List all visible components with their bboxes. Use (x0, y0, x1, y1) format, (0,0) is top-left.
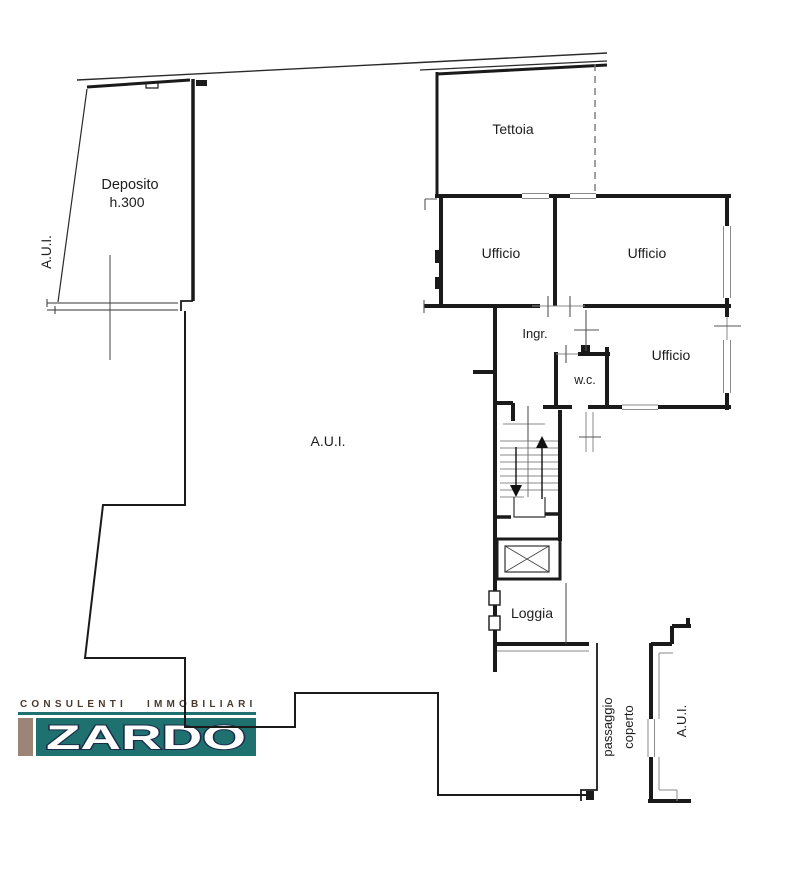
label-deposito: Deposito (101, 177, 158, 193)
label-aui-right: A.U.I. (674, 705, 689, 738)
deposito-top-wall (87, 80, 190, 87)
label-passaggio-line1: passaggio (600, 697, 615, 756)
deposito-left-slant-line (58, 89, 87, 302)
label-ufficio-right: Ufficio (652, 347, 691, 363)
floorplan-canvas: CONSULENTI IMMOBILIARI ZARDO (0, 0, 810, 872)
label-aui-left: A.U.I. (39, 235, 54, 269)
label-ufficio-top-right: Ufficio (628, 245, 667, 261)
site-boundary-lines (77, 53, 607, 80)
floorplan-drawing: Deposito h.300 A.U.I. Tettoia Ufficio Uf… (0, 0, 810, 872)
label-passaggio-line2: coperto (621, 705, 636, 748)
site-line-upper (77, 53, 607, 80)
aui-main-outline (85, 311, 589, 795)
elevator (497, 539, 560, 579)
stair-arrow-down-head (510, 485, 522, 497)
loggia-window-2 (489, 616, 500, 630)
stair-landing-outline (514, 497, 545, 517)
tettoia-top-wall (437, 65, 607, 74)
deposito-walls (47, 79, 207, 360)
deposito-right-wall-step (181, 301, 193, 311)
deposito-gate-lines (47, 303, 178, 310)
opening-tick-marks (424, 199, 741, 441)
office-window-notch-1 (435, 250, 441, 263)
stair-treads (500, 441, 558, 497)
deposito-gate-ticks (47, 299, 55, 314)
elevator-shaft-wall (497, 539, 560, 579)
elevator-cross (505, 546, 549, 572)
passaggio-left-wall (581, 643, 597, 801)
loggia-window-1 (489, 591, 500, 605)
label-aui-main: A.U.I. (310, 433, 345, 449)
label-deposito-height: h.300 (109, 194, 144, 210)
office-window-notch-2 (435, 277, 441, 289)
label-loggia: Loggia (511, 605, 553, 621)
stair-arrow-up-head (536, 436, 548, 448)
aui-outline-corner-block (586, 791, 594, 800)
label-ingresso: Ingr. (522, 326, 547, 341)
deposito-wall-tick (196, 80, 207, 86)
label-wc: w.c. (573, 373, 596, 387)
label-tettoia: Tettoia (492, 121, 533, 137)
label-ufficio-top-left: Ufficio (482, 245, 521, 261)
